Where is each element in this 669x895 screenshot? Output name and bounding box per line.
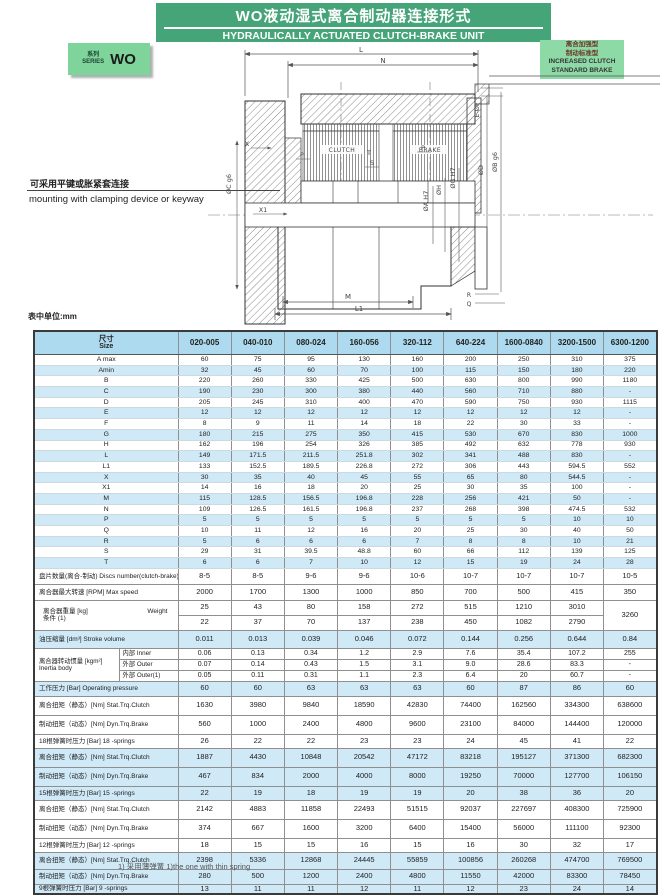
dim-label-q: Q xyxy=(467,301,472,308)
table-row: C190230300380440560710880- xyxy=(34,387,657,398)
table-cell: 1630 xyxy=(178,696,231,715)
dim-label-p: P xyxy=(300,151,304,159)
table-cell: 375 xyxy=(604,355,657,366)
table-cell: 1000 xyxy=(231,715,284,734)
table-cell: 237 xyxy=(391,504,444,515)
table-cell: - xyxy=(604,451,657,462)
column-header: 040-010 xyxy=(231,331,284,355)
table-cell: 10-6 xyxy=(391,568,444,584)
units-note: 表中单位:mm xyxy=(28,311,77,322)
table-cell: 421 xyxy=(497,493,550,504)
table-cell: 9600 xyxy=(391,715,444,734)
table-cell: 638600 xyxy=(604,696,657,715)
dia-label-b: ØB g6 xyxy=(491,152,499,172)
technical-drawing: CLUTCH BRAKE L N M L1 R Q X P T S P X1 xyxy=(183,46,665,328)
table-cell: 371300 xyxy=(550,748,603,767)
table-row: E1212121212121212- xyxy=(34,408,657,419)
table-cell: 408300 xyxy=(550,800,603,819)
table-cell: 11550 xyxy=(444,869,497,884)
table-cell: 10-5 xyxy=(604,568,657,584)
table-cell: 19 xyxy=(497,558,550,569)
table-cell: 25 xyxy=(391,483,444,494)
table-cell: 275 xyxy=(284,429,337,440)
table-cell: 880 xyxy=(550,387,603,398)
table-cell: 171.5 xyxy=(231,451,284,462)
table-cell: 0.046 xyxy=(338,630,391,648)
table-cell: 474.5 xyxy=(550,504,603,515)
table-cell: 211.5 xyxy=(284,451,337,462)
table-row: S293139.548.86066112139125 xyxy=(34,547,657,558)
table-cell: 15 xyxy=(231,838,284,852)
dim-label-s: S xyxy=(370,159,374,167)
table-cell: 51515 xyxy=(391,800,444,819)
mounting-note-zh: 可采用平键或胀紧套连接 xyxy=(30,177,129,190)
table-cell: 70000 xyxy=(497,767,550,786)
shaft xyxy=(245,203,475,227)
table-row: B2202603304255006308009901180 xyxy=(34,376,657,387)
table-cell: 228 xyxy=(391,493,444,504)
table-cell: 22 xyxy=(444,419,497,430)
table-cell: 1200 xyxy=(284,869,337,884)
table-row: 离合扭矩（静态）[Nm] Stat.Trq.Clutch214248831185… xyxy=(34,800,657,819)
table-cell: 22 xyxy=(284,734,337,748)
table-cell: 5 xyxy=(444,515,497,526)
table-cell: 0.644 xyxy=(550,630,603,648)
table-cell: 220 xyxy=(604,365,657,376)
table-cell: 385 xyxy=(391,440,444,451)
mounting-note-en: mounting with clamping device or keyway xyxy=(29,194,204,205)
table-cell: 2.9 xyxy=(391,648,444,659)
table-row: 离合器转动惯量 [kgm²]Inertia body内部 Inner外部 Out… xyxy=(34,648,657,659)
table-cell: 83218 xyxy=(444,748,497,767)
table-cell: 7 xyxy=(391,536,444,547)
table-cell: 100 xyxy=(391,365,444,376)
table-cell: 10 xyxy=(604,515,657,526)
table-cell: 1000 xyxy=(338,584,391,600)
table-cell: 778 xyxy=(550,440,603,451)
table-cell: 150 xyxy=(497,365,550,376)
table-cell: 23100 xyxy=(444,715,497,734)
table-row: 油压缩量 [dm³] Stroke volume0.0110.0130.0390… xyxy=(34,630,657,648)
column-header: 640-224 xyxy=(444,331,497,355)
bolt-circle-label: E-ØF xyxy=(473,102,481,118)
column-header: 6300-1200 xyxy=(604,331,657,355)
table-cell: 工作压力 [Bar] Operating pressure xyxy=(34,681,178,696)
table-cell: 560 xyxy=(444,387,497,398)
table-cell: 341 xyxy=(444,451,497,462)
table-cell: G xyxy=(34,429,178,440)
table-cell: 离合扭矩（静态）[Nm] Stat.Trq.Clutch xyxy=(34,800,178,819)
table-cell: 2000 xyxy=(178,584,231,600)
table-cell: 330 xyxy=(284,376,337,387)
table-cell: 1300 xyxy=(284,584,337,600)
table-cell: 75 xyxy=(231,355,284,366)
table-cell: 10848 xyxy=(284,748,337,767)
table-cell: 380 xyxy=(338,387,391,398)
table-cell: 11 xyxy=(231,526,284,537)
table-cell: 36 xyxy=(550,786,603,800)
column-header: 020-005 xyxy=(178,331,231,355)
table-cell: 630 xyxy=(444,376,497,387)
table-cell: 1.5 xyxy=(338,659,391,670)
table-cell: 制动扭矩（动态）[Nm] Dyn.Trq.Brake xyxy=(34,767,178,786)
table-cell: 22 xyxy=(604,734,657,748)
table-cell: 20 xyxy=(497,670,550,681)
table-cell: 28.6 xyxy=(497,659,550,670)
table-cell: 6.4 xyxy=(444,670,497,681)
table-row: F89111418223033- xyxy=(34,419,657,430)
table-cell: 25 xyxy=(444,526,497,537)
table-row: A max607595130160200250310375 xyxy=(34,355,657,366)
table-cell: 40 xyxy=(284,472,337,483)
table-cell: 18 xyxy=(178,838,231,852)
table-cell: 12根弹簧时压力 [Bar] 12 -springs xyxy=(34,838,178,852)
table-cell: 37 xyxy=(231,615,284,630)
table-cell: 0.43 xyxy=(284,659,337,670)
table-cell: - xyxy=(604,483,657,494)
table-cell: 20 xyxy=(391,526,444,537)
table-cell: 310 xyxy=(284,397,337,408)
table-cell: 20 xyxy=(604,786,657,800)
table-cell: 48.8 xyxy=(338,547,391,558)
table-row: N109126.5161.5196.8237268398474.5532 xyxy=(34,504,657,515)
table-cell: L xyxy=(34,451,178,462)
table-cell: 195127 xyxy=(497,748,550,767)
table-cell: 86 xyxy=(550,681,603,696)
table-cell: R xyxy=(34,536,178,547)
table-cell: 450 xyxy=(444,615,497,630)
table-cell: 6 xyxy=(178,558,231,569)
table-cell: B xyxy=(34,376,178,387)
table-cell: 12 xyxy=(284,526,337,537)
table-cell: 560 xyxy=(178,715,231,734)
table-cell: 162560 xyxy=(497,696,550,715)
table-cell: 725900 xyxy=(604,800,657,819)
table-cell: 16 xyxy=(338,838,391,852)
table-row: M115128.5156.5196.822825642150- xyxy=(34,493,657,504)
table-cell: 8-5 xyxy=(178,568,231,584)
table-cell: 0.256 xyxy=(497,630,550,648)
table-cell: 24445 xyxy=(338,852,391,869)
table-cell: 10 xyxy=(550,515,603,526)
table-cell: 22 xyxy=(231,734,284,748)
dim-label-p2: P xyxy=(421,144,425,152)
table-cell: 9840 xyxy=(284,696,337,715)
table-cell: 6 xyxy=(231,536,284,547)
table-cell: - xyxy=(604,387,657,398)
table-cell: 15 xyxy=(284,838,337,852)
table-cell: 443 xyxy=(497,461,550,472)
dim-label-l1: L1 xyxy=(355,305,363,313)
table-cell: 74400 xyxy=(444,696,497,715)
table-cell: - xyxy=(604,419,657,430)
table-cell: 3010 xyxy=(550,600,603,615)
table-cell: 830 xyxy=(550,451,603,462)
column-header: 160-056 xyxy=(338,331,391,355)
table-cell: 10 xyxy=(338,558,391,569)
table-cell: 7 xyxy=(284,558,337,569)
table-cell: 0.011 xyxy=(178,630,231,648)
table-row: 18根弹簧时压力 [Bar] 18 -springs26222223232445… xyxy=(34,734,657,748)
table-cell: 24 xyxy=(444,734,497,748)
table-row: 12根弹簧时压力 [Bar] 12 -springs18151516151630… xyxy=(34,838,657,852)
table-cell: 133 xyxy=(178,461,231,472)
table-cell: 19 xyxy=(391,786,444,800)
table-cell: 137 xyxy=(338,615,391,630)
table-cell: 50 xyxy=(550,493,603,504)
table-cell: 227697 xyxy=(497,800,550,819)
table-cell: 488 xyxy=(497,451,550,462)
table-cell: 632 xyxy=(497,440,550,451)
table-cell: 43 xyxy=(231,600,284,615)
table-cell: 250 xyxy=(497,355,550,366)
table-cell: 158 xyxy=(338,600,391,615)
table-cell: 205 xyxy=(178,397,231,408)
table-row: 离合器最大转速 [RPM] Max speed20001700130010008… xyxy=(34,584,657,600)
clutch-brake-section xyxy=(245,84,489,324)
table-cell: 0.05 xyxy=(178,670,231,681)
dia-label-a: ØA H7 xyxy=(422,191,430,212)
table-cell: 474700 xyxy=(550,852,603,869)
mounting-note-leader-line xyxy=(27,190,280,191)
table-cell: 15 xyxy=(444,558,497,569)
table-cell: 83.3 xyxy=(550,659,603,670)
table-cell: 30 xyxy=(444,483,497,494)
table-cell: Amin xyxy=(34,365,178,376)
table-cell: 255 xyxy=(604,648,657,659)
table-cell: 594.5 xyxy=(550,461,603,472)
table-cell: D xyxy=(34,397,178,408)
table-cell: 302 xyxy=(391,451,444,462)
table-cell: 334300 xyxy=(550,696,603,715)
table-cell: 425 xyxy=(338,376,391,387)
table-cell: 16 xyxy=(338,526,391,537)
table-cell: 11858 xyxy=(284,800,337,819)
table-cell: 552 xyxy=(604,461,657,472)
table-cell: 834 xyxy=(231,767,284,786)
table-row: R56667881021 xyxy=(34,536,657,547)
table-cell: X xyxy=(34,472,178,483)
table-row: 工作压力 [Bar] Operating pressure60606363636… xyxy=(34,681,657,696)
table-cell: 42830 xyxy=(391,696,444,715)
table-cell: 130 xyxy=(338,355,391,366)
table-cell: 24 xyxy=(550,884,603,894)
dim-label-m: M xyxy=(345,293,351,301)
table-cell: 3.1 xyxy=(391,659,444,670)
column-header: 3200-1500 xyxy=(550,331,603,355)
table-cell: 盘片数量(离合-制动) Discs number(clutch-brake) xyxy=(34,568,178,584)
table-cell: 6 xyxy=(231,558,284,569)
table-cell: 离合扭矩（静态）[Nm] Stat.Trq.Clutch xyxy=(34,696,178,715)
table-row: 离合扭矩（静态）[Nm] Stat.Trq.Clutch188744301084… xyxy=(34,748,657,767)
table-cell: - xyxy=(604,408,657,419)
table-cell: 544.5 xyxy=(550,472,603,483)
table-cell: 161.5 xyxy=(284,504,337,515)
table-cell: 30 xyxy=(497,838,550,852)
table-cell: 5 xyxy=(178,515,231,526)
table-cell: 4800 xyxy=(391,869,444,884)
table-cell: 306 xyxy=(444,461,497,472)
clutch-region-label: CLUTCH xyxy=(329,147,356,154)
table-cell: 45 xyxy=(497,734,550,748)
table-cell: 18 xyxy=(391,419,444,430)
column-header: 080-024 xyxy=(284,331,337,355)
table-cell: 590 xyxy=(444,397,497,408)
series-label-zh: 系列 xyxy=(82,52,104,59)
table-cell: 29 xyxy=(178,547,231,558)
table-cell: 11 xyxy=(284,884,337,894)
table-cell: 14 xyxy=(338,419,391,430)
table-cell: 16 xyxy=(231,483,284,494)
table-cell: 196.8 xyxy=(338,493,391,504)
table-cell: 700 xyxy=(444,584,497,600)
table-cell: 272 xyxy=(391,461,444,472)
table-cell: 10-7 xyxy=(497,568,550,584)
table-cell: 750 xyxy=(497,397,550,408)
table-cell: T xyxy=(34,558,178,569)
table-cell: 532 xyxy=(604,504,657,515)
table-cell: 12 xyxy=(338,884,391,894)
table-cell: 112 xyxy=(497,547,550,558)
table-row: L149171.5211.5251.8302341488830- xyxy=(34,451,657,462)
table-cell: 272 xyxy=(391,600,444,615)
table-cell: 15 xyxy=(391,838,444,852)
series-code: WO xyxy=(110,51,136,68)
series-label-en: SERIES xyxy=(82,59,104,66)
table-cell: 111100 xyxy=(550,819,603,838)
series-badge: 系列 SERIES WO xyxy=(68,43,150,75)
table-cell: 2142 xyxy=(178,800,231,819)
table-cell: 9-6 xyxy=(284,568,337,584)
table-cell: 682300 xyxy=(604,748,657,767)
table-cell: 180 xyxy=(550,365,603,376)
footnote-partial: 1) 采用薄弹簧 1)the one with thin spring xyxy=(118,861,250,872)
table-cell: 260 xyxy=(231,376,284,387)
housing-drum xyxy=(301,94,475,124)
table-cell: C xyxy=(34,387,178,398)
table-cell: 15根弹簧时压力 [Bar] 15 -springs xyxy=(34,786,178,800)
table-cell: 196.8 xyxy=(338,504,391,515)
column-header: 320-112 xyxy=(391,331,444,355)
table-cell: 4430 xyxy=(231,748,284,767)
table-cell: 60 xyxy=(178,681,231,696)
table-cell: 23 xyxy=(497,884,550,894)
table-cell: 115 xyxy=(178,493,231,504)
table-cell: 83300 xyxy=(550,869,603,884)
table-cell: 0.14 xyxy=(231,659,284,670)
table-cell: 670 xyxy=(497,429,550,440)
table-cell: 26 xyxy=(178,734,231,748)
table-cell: 398 xyxy=(497,504,550,515)
table-cell: 19 xyxy=(338,786,391,800)
table-cell: 23 xyxy=(338,734,391,748)
table-cell: 12 xyxy=(178,408,231,419)
table-cell: 25 xyxy=(178,600,231,615)
catalog-page: { "banner": { "title_zh": "WO液动湿式离合制动器连接… xyxy=(0,0,669,865)
table-cell: F xyxy=(34,419,178,430)
table-cell: 260268 xyxy=(497,852,550,869)
table-cell: 20 xyxy=(444,786,497,800)
table-cell: 5 xyxy=(391,515,444,526)
table-cell: 12 xyxy=(391,558,444,569)
table-cell: 60 xyxy=(391,547,444,558)
table-header-row: 尺寸Size020-005040-010080-024160-056320-11… xyxy=(34,331,657,355)
table-cell: 8 xyxy=(444,536,497,547)
title-divider xyxy=(164,27,543,29)
table-cell: 2000 xyxy=(284,767,337,786)
table-cell: 55 xyxy=(391,472,444,483)
table-cell: 10-7 xyxy=(550,568,603,584)
table-cell: 268 xyxy=(444,504,497,515)
table-cell: 245 xyxy=(231,397,284,408)
output-hub xyxy=(278,227,451,309)
table-cell: 9.0 xyxy=(444,659,497,670)
table-cell: 0.144 xyxy=(444,630,497,648)
table-cell: 47172 xyxy=(391,748,444,767)
table-cell: 467 xyxy=(178,767,231,786)
table-cell: 850 xyxy=(391,584,444,600)
table-cell: 149 xyxy=(178,451,231,462)
table-cell: 11 xyxy=(284,419,337,430)
table-cell: 1700 xyxy=(231,584,284,600)
table-cell: 39.5 xyxy=(284,547,337,558)
table-cell: 10-7 xyxy=(444,568,497,584)
table-cell: 830 xyxy=(550,429,603,440)
table-cell: 0.11 xyxy=(231,670,284,681)
table-row: G1802152753504155306708301000 xyxy=(34,429,657,440)
table-row: T667101215192428 xyxy=(34,558,657,569)
table-row: 制动扭矩（动态）[Nm] Dyn.Trq.Brake56010002400480… xyxy=(34,715,657,734)
table-cell: 12 xyxy=(391,408,444,419)
table-cell: 60 xyxy=(178,355,231,366)
table-cell: 109 xyxy=(178,504,231,515)
table-cell: 30 xyxy=(497,419,550,430)
table-cell: 300 xyxy=(284,387,337,398)
table-cell: - xyxy=(604,670,657,681)
table-cell: 20 xyxy=(338,483,391,494)
table-cell: 667 xyxy=(231,819,284,838)
table-cell: 油压缩量 [dm³] Stroke volume xyxy=(34,630,178,648)
table-cell: 11 xyxy=(231,884,284,894)
table-row: Amin32456070100115150180220 xyxy=(34,365,657,376)
table-cell: 220 xyxy=(178,376,231,387)
table-cell: 14 xyxy=(604,884,657,894)
table-cell: 2790 xyxy=(550,615,603,630)
table-cell: 530 xyxy=(444,429,497,440)
table-cell: 12 xyxy=(444,884,497,894)
table-cell: 35.4 xyxy=(497,648,550,659)
series-label: 系列 SERIES xyxy=(82,52,104,66)
table-cell: 156.5 xyxy=(284,493,337,504)
table-cell: 230 xyxy=(231,387,284,398)
table-cell: 17 xyxy=(604,838,657,852)
spec-table-container: 尺寸Size020-005040-010080-024160-056320-11… xyxy=(33,330,657,895)
table-cell: 215 xyxy=(231,429,284,440)
table-cell: 106150 xyxy=(604,767,657,786)
table-cell: 12 xyxy=(550,408,603,419)
table-cell: 190 xyxy=(178,387,231,398)
table-cell: 3260 xyxy=(604,600,657,630)
table-cell: 251.8 xyxy=(338,451,391,462)
table-cell: 80 xyxy=(284,600,337,615)
table-cell: M xyxy=(34,493,178,504)
table-cell: 92037 xyxy=(444,800,497,819)
table-cell: 18根弹簧时压力 [Bar] 18 -springs xyxy=(34,734,178,748)
table-row: 制动扭矩（动态）[Nm] Dyn.Trq.Brake46783420004000… xyxy=(34,767,657,786)
table-cell: 1.1 xyxy=(338,670,391,681)
table-cell: 107.2 xyxy=(550,648,603,659)
table-cell: 180 xyxy=(178,429,231,440)
